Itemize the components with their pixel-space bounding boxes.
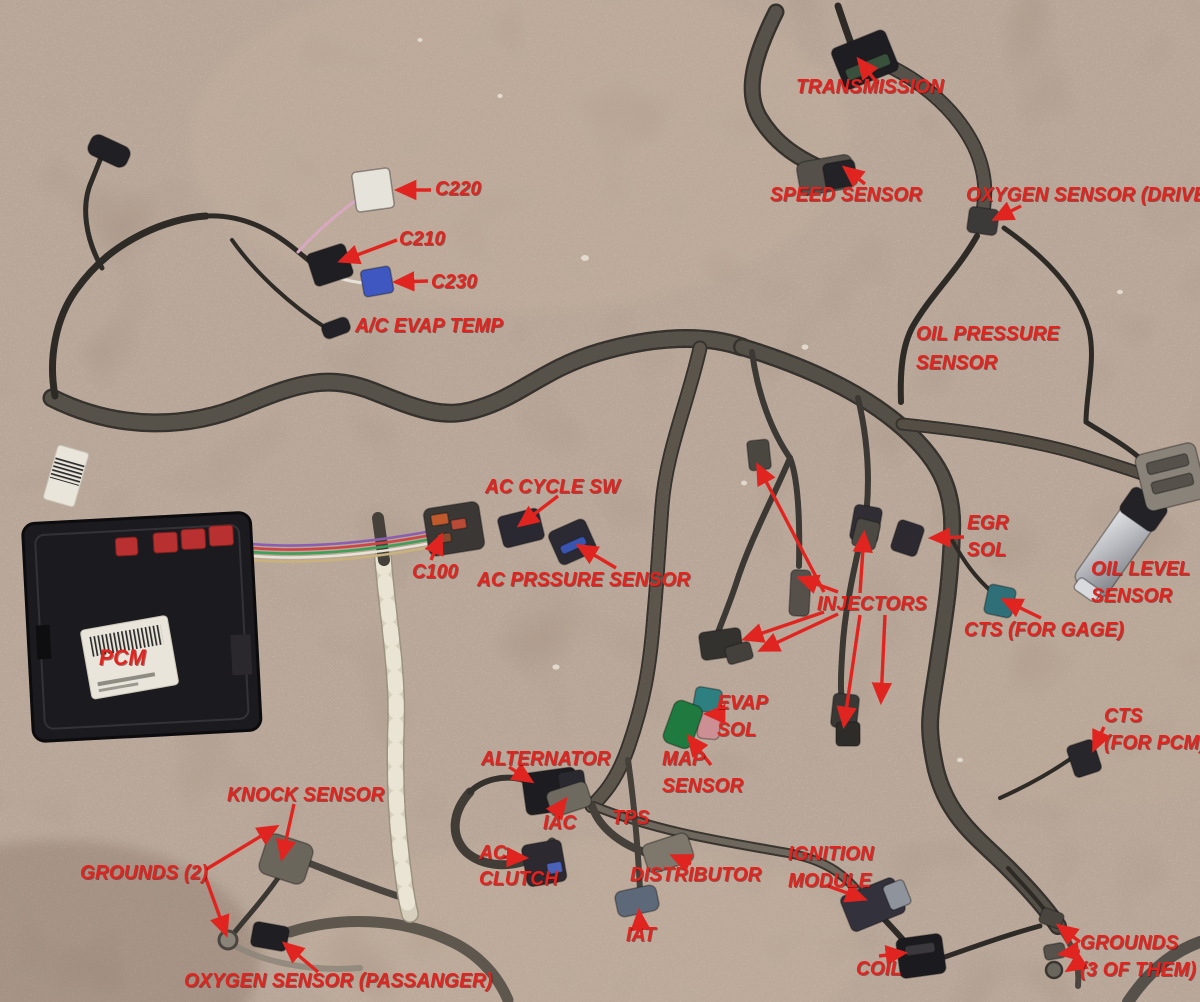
label-egr-sol: EGRSOL	[967, 510, 1009, 564]
label-evap-sol-line-1: SOL	[717, 717, 768, 744]
label-pcm-line-0: PCM	[99, 646, 146, 671]
label-cts-for-gage-line-0: CTS (FOR GAGE)	[964, 619, 1124, 641]
label-transmission-line-0: TRANSMISSION	[796, 76, 944, 98]
label-ac-evap-temp-line-0: A/C EVAP TEMP	[355, 315, 503, 337]
label-c210: C210	[399, 228, 445, 250]
label-cts-for-pcm-line-0: CTS	[1104, 703, 1200, 730]
label-pcm: PCM	[99, 646, 146, 671]
label-speed-sensor: SPEED SENSOR	[770, 184, 922, 206]
label-egr-sol-line-0: EGR	[967, 510, 1009, 537]
label-iat-line-0: IAT	[626, 924, 656, 946]
label-injectors: INJECTORS	[817, 593, 927, 615]
label-cts-for-gage: CTS (FOR GAGE)	[964, 619, 1124, 641]
label-oxygen-sensor-drivers-line-0: OXYGEN SENSOR (DRIVERS)	[966, 184, 1200, 206]
label-c220-line-0: C220	[435, 178, 481, 200]
label-ignition-module-line-0: IGNITION	[788, 841, 874, 868]
label-oil-pressure-sensor: OIL PRESSURESENSOR	[916, 320, 1059, 378]
label-coil: COIL	[856, 958, 902, 980]
label-alternator-line-0: ALTERNATOR	[481, 748, 611, 770]
label-oxygen-sensor-passanger-line-0: OXYGEN SENSOR (PASSANGER)	[184, 970, 492, 992]
label-ac-clutch-line-1: CLUTCH	[479, 866, 558, 892]
label-oil-level-sensor-line-0: OIL LEVEL	[1091, 556, 1191, 583]
label-iat: IAT	[626, 924, 656, 946]
label-ignition-module-line-1: MODULE	[788, 868, 874, 895]
label-oil-level-sensor: OIL LEVELSENSOR	[1091, 556, 1191, 610]
annotation-labels: TRANSMISSIONSPEED SENSOROXYGEN SENSOR (D…	[0, 0, 1200, 1002]
label-egr-sol-line-1: SOL	[967, 537, 1009, 564]
label-map-sensor: MAPSENSOR	[662, 746, 743, 800]
label-ac-prssure-sensor-line-0: AC PRSSURE SENSOR	[477, 569, 690, 591]
label-injectors-line-0: INJECTORS	[817, 593, 927, 615]
label-c230: C230	[431, 271, 477, 293]
label-knock-sensor: KNOCK SENSOR	[227, 784, 384, 806]
label-iac-line-0: IAC	[543, 812, 576, 834]
label-tps-line-0: TPS	[612, 807, 650, 829]
label-grounds-3-line-0: GROUNDS	[1080, 930, 1196, 957]
label-ac-clutch-line-0: AC	[479, 840, 558, 866]
label-evap-sol: EVAPSOL	[717, 690, 768, 744]
label-cts-for-pcm: CTS(FOR PCM)	[1104, 703, 1200, 757]
label-c210-line-0: C210	[399, 228, 445, 250]
label-c230-line-0: C230	[431, 271, 477, 293]
label-oil-pressure-sensor-line-1: SENSOR	[916, 349, 1059, 378]
label-distributor: DISTRIBUTOR	[630, 864, 762, 886]
label-oxygen-sensor-passanger: OXYGEN SENSOR (PASSANGER)	[184, 970, 492, 992]
label-transmission: TRANSMISSION	[796, 76, 944, 98]
label-oil-level-sensor-line-1: SENSOR	[1091, 583, 1191, 610]
label-distributor-line-0: DISTRIBUTOR	[630, 864, 762, 886]
label-oil-pressure-sensor-line-0: OIL PRESSURE	[916, 320, 1059, 349]
label-map-sensor-line-1: SENSOR	[662, 773, 743, 800]
label-ac-clutch: ACCLUTCH	[479, 840, 558, 892]
label-knock-sensor-line-0: KNOCK SENSOR	[227, 784, 384, 806]
label-c100: C100	[412, 561, 458, 583]
label-grounds-2: GROUNDS (2)	[80, 862, 208, 884]
label-speed-sensor-line-0: SPEED SENSOR	[770, 184, 922, 206]
label-alternator: ALTERNATOR	[481, 748, 611, 770]
label-grounds-3: GROUNDS(3 OF THEM)	[1080, 930, 1196, 984]
label-ac-cycle-sw: AC CYCLE SW	[485, 476, 620, 498]
label-evap-sol-line-0: EVAP	[717, 690, 768, 717]
label-ignition-module: IGNITIONMODULE	[788, 841, 874, 895]
label-oxygen-sensor-drivers: OXYGEN SENSOR (DRIVERS)	[966, 184, 1200, 206]
label-iac: IAC	[543, 812, 576, 834]
label-tps: TPS	[612, 807, 650, 829]
label-c220: C220	[435, 178, 481, 200]
label-coil-line-0: COIL	[856, 958, 902, 980]
label-ac-cycle-sw-line-0: AC CYCLE SW	[485, 476, 620, 498]
label-grounds-3-line-1: (3 OF THEM)	[1080, 957, 1196, 984]
label-grounds-2-line-0: GROUNDS (2)	[80, 862, 208, 884]
label-ac-evap-temp: A/C EVAP TEMP	[355, 315, 503, 337]
annotated-wiring-harness-photo: TRANSMISSIONSPEED SENSOROXYGEN SENSOR (D…	[0, 0, 1200, 1002]
label-cts-for-pcm-line-1: (FOR PCM)	[1104, 730, 1200, 757]
label-map-sensor-line-0: MAP	[662, 746, 743, 773]
label-ac-prssure-sensor: AC PRSSURE SENSOR	[477, 569, 690, 591]
label-c100-line-0: C100	[412, 561, 458, 583]
